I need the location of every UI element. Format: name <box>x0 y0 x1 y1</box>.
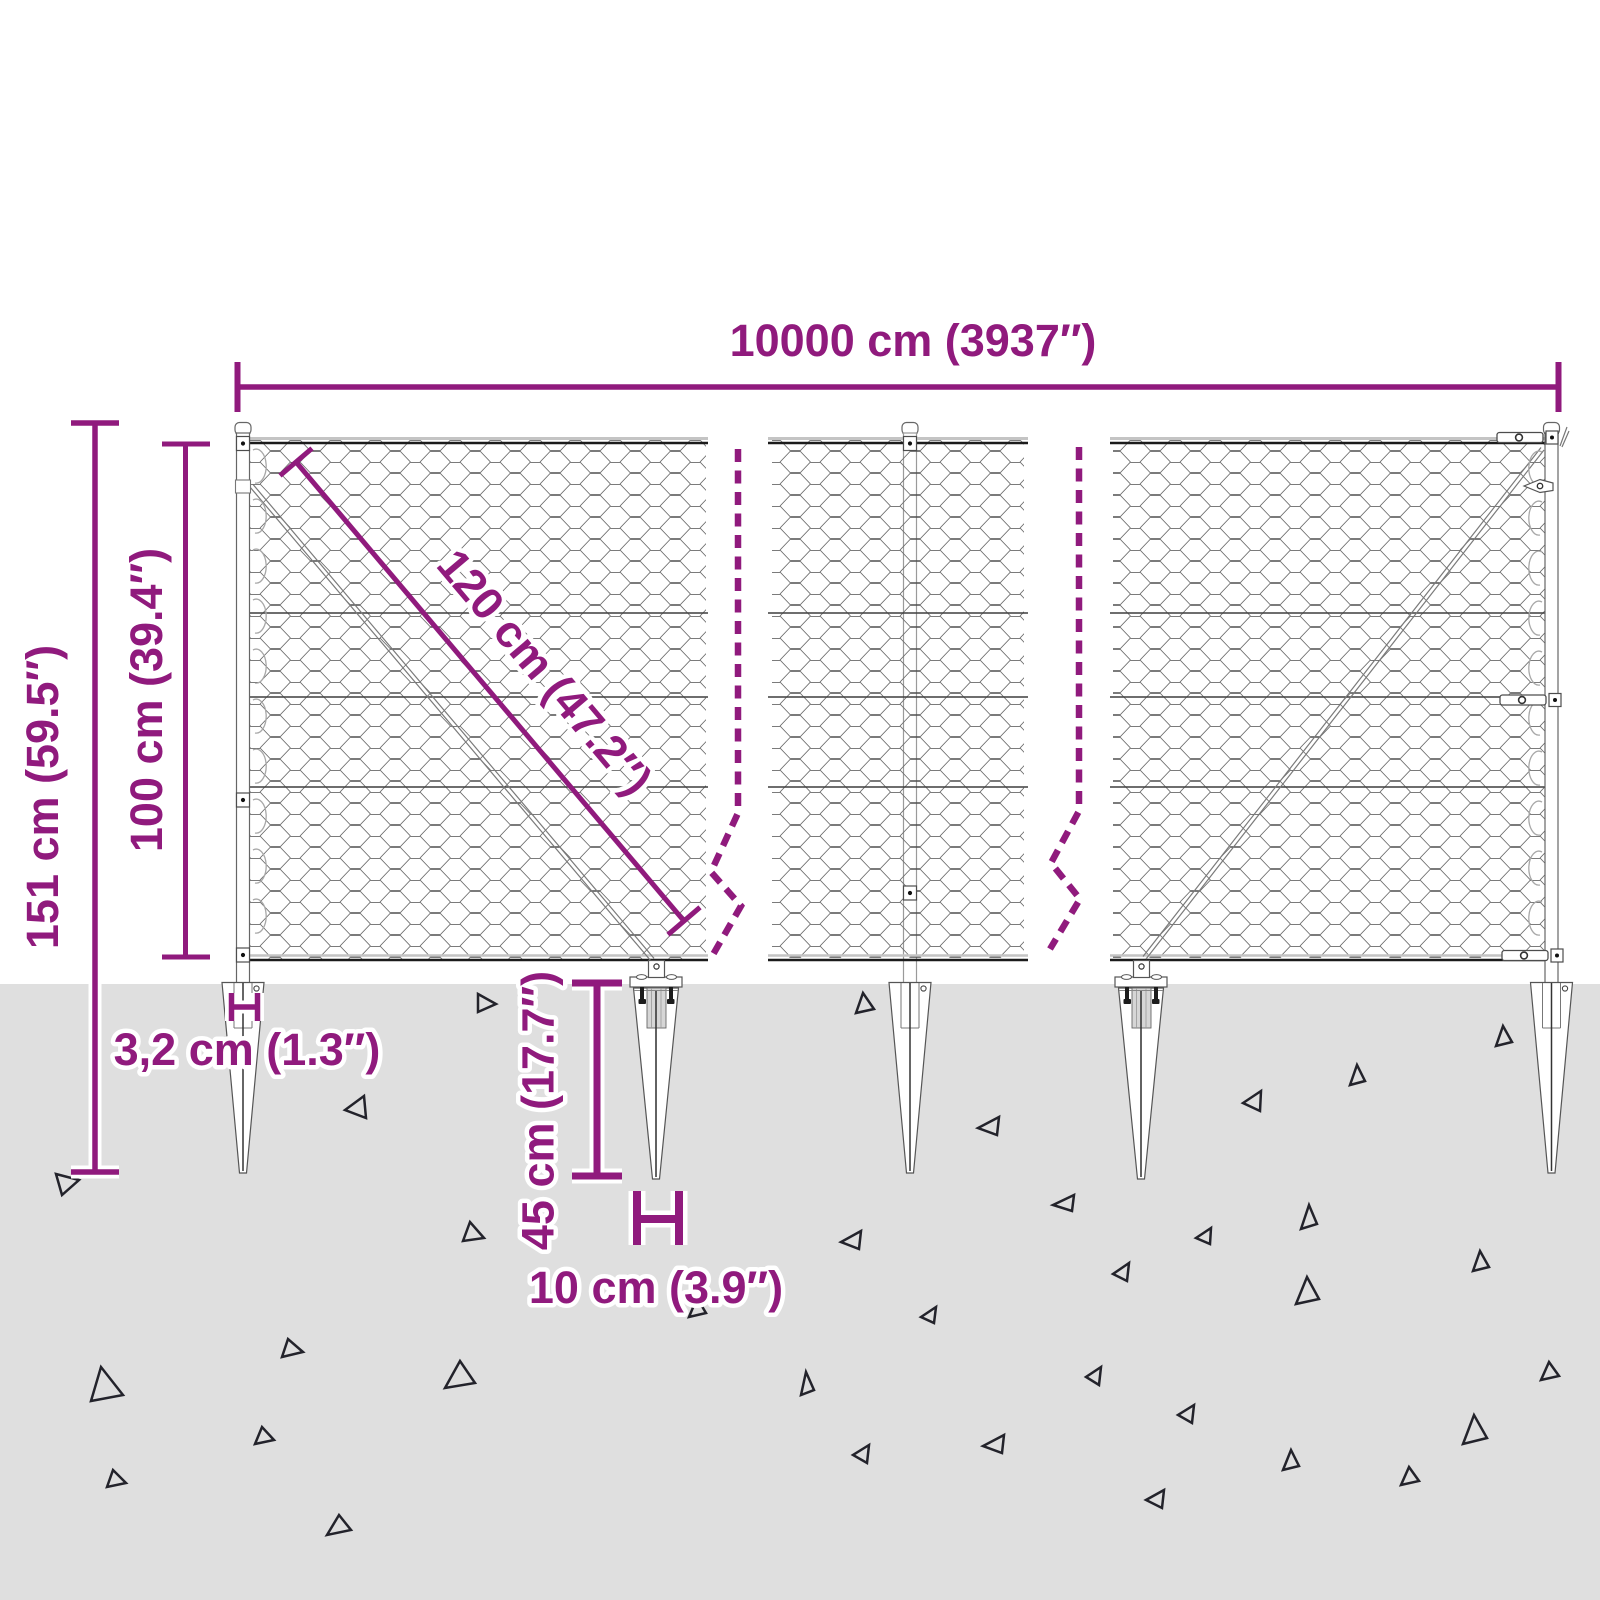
svg-text:3,2 cm (1.3″): 3,2 cm (1.3″) <box>114 1024 381 1075</box>
svg-text:10 cm (3.9″): 10 cm (3.9″) <box>529 1262 783 1313</box>
svg-text:151 cm (59.5″): 151 cm (59.5″) <box>17 645 68 949</box>
svg-text:100 cm (39.4″): 100 cm (39.4″) <box>121 548 172 852</box>
svg-text:10000 cm (3937″): 10000 cm (3937″) <box>730 315 1097 366</box>
svg-text:45 cm (17.7″): 45 cm (17.7″) <box>513 971 564 1250</box>
